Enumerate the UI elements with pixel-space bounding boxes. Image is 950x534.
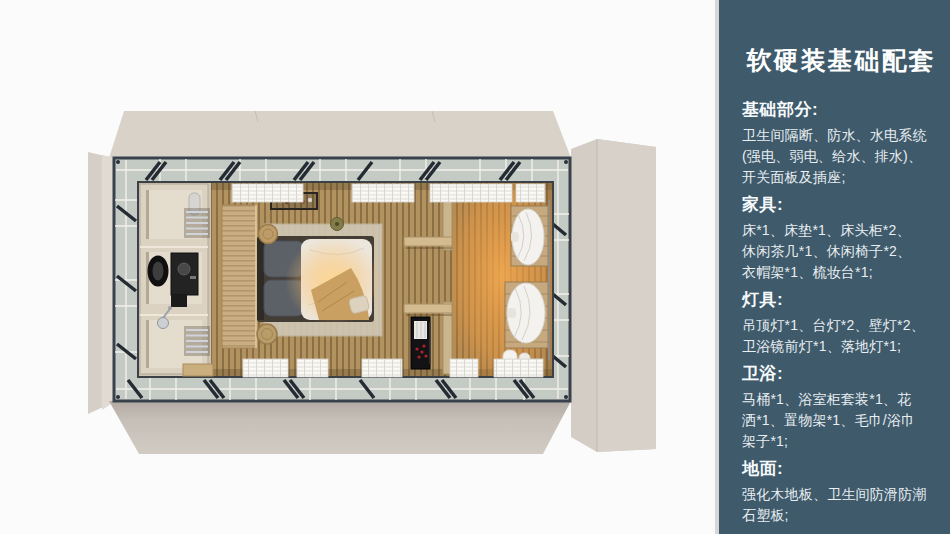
plant-decor [331, 218, 344, 231]
section-heading: 灯具: [742, 289, 940, 311]
section-line: 卫生间隔断、防水、水电系统 [742, 125, 940, 146]
sidebar-section-bathroom: 卫浴: 马桶*1、浴室柜套装*1、花 洒*1、置物架*1、毛巾/浴巾 架子*1; [742, 363, 940, 452]
curtain-bands-top [232, 184, 545, 202]
section-heading: 家具: [742, 194, 940, 216]
floor-plank [183, 364, 213, 376]
section-heading: 地面: [742, 458, 940, 480]
section-line: (强电、弱电、给水、排水)、 [742, 146, 940, 167]
curtain-right-bottom [507, 283, 545, 343]
flap-bottom [109, 401, 571, 454]
section-line: 石塑板; [742, 505, 940, 526]
section-line: 马桶*1、浴室柜套装*1、花 [742, 389, 940, 410]
sidebar-section-flooring: 地面: 强化木地板、卫生间防滑防潮 石塑板; [742, 458, 940, 526]
section-line: 卫浴镜前灯*1、落地灯*1; [742, 336, 940, 357]
slide-canvas: 软硬装基础配套 基础部分: 卫生间隔断、防水、水电系统 (强电、弱电、给水、排水… [0, 0, 950, 534]
stool-top [259, 225, 278, 244]
section-line: 吊顶灯*1、台灯*2、壁灯*2、 [742, 315, 940, 336]
flap-top [109, 111, 571, 158]
pouf-bottom [257, 324, 277, 344]
sidebar-section-furniture: 家具: 床*1、床垫*1、床头柜*2、 休闲茶几*1、休闲椅子*2、 衣帽架*1… [742, 194, 940, 283]
bed [257, 224, 382, 336]
flap-left [88, 152, 114, 414]
section-line: 洒*1、置物架*1、毛巾/浴巾 [742, 410, 940, 431]
sidebar-title: 软硬装基础配套 [742, 44, 940, 77]
section-line: 床*1、床垫*1、床头柜*2、 [742, 220, 940, 241]
section-line: 开关面板及插座; [742, 167, 940, 188]
sidebar-section-basics: 基础部分: 卫生间隔断、防水、水电系统 (强电、弱电、给水、排水)、 开关面板及… [742, 99, 940, 188]
sidebar-section-lighting: 灯具: 吊顶灯*1、台灯*2、壁灯*2、 卫浴镜前灯*1、落地灯*1; [742, 289, 940, 357]
toilet [148, 256, 169, 287]
section-line: 休闲茶几*1、休闲椅子*2、 [742, 241, 940, 262]
section-line: 衣帽架*1、梳妆台*1; [742, 262, 940, 283]
info-sidebar: 软硬装基础配套 基础部分: 卫生间隔断、防水、水电系统 (强电、弱电、给水、排水… [715, 0, 950, 534]
section-heading: 卫浴: [742, 363, 940, 385]
flap-right [571, 139, 656, 452]
section-line: 强化木地板、卫生间防滑防潮 [742, 484, 940, 505]
section-heading: 基础部分: [742, 99, 940, 121]
curtain-bands-bottom [243, 359, 543, 377]
headboard-partition [222, 205, 256, 348]
floorplan-render [0, 0, 715, 534]
section-line: 架子*1; [742, 431, 940, 452]
display-cabinet [411, 317, 430, 369]
